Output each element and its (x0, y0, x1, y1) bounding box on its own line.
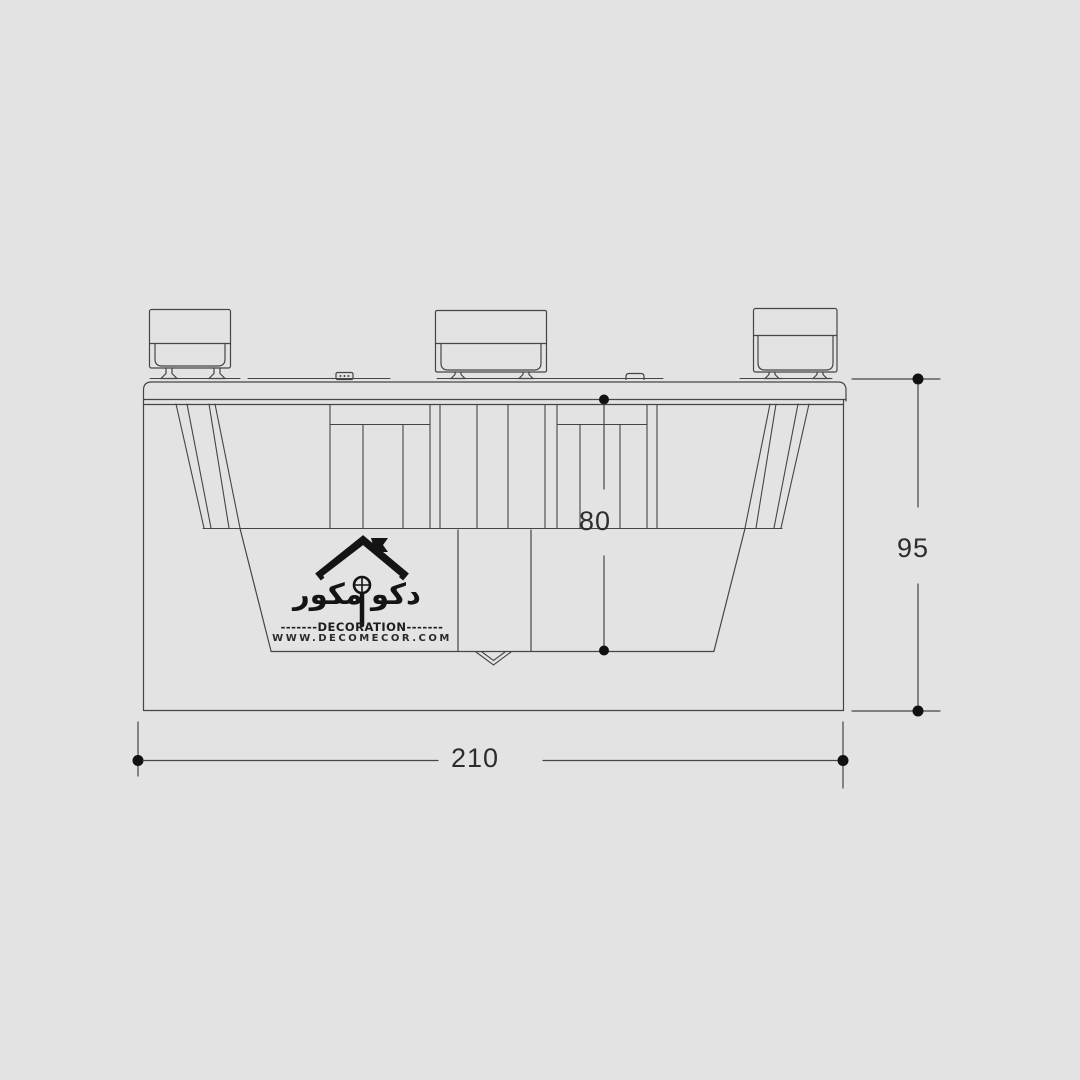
brand-arabic-left: مکور (293, 580, 363, 609)
dimension-label-overall-height: 95 (897, 533, 929, 564)
driver-box-middle (436, 311, 547, 379)
diagram-canvas: 80 95 210 دکو مکور -------DECORATION----… (0, 0, 1080, 1080)
brand-arabic-right: دکو (371, 580, 421, 609)
spring-clip-left (176, 404, 240, 528)
heatsink-fins (203, 405, 782, 529)
spring-clip-right (745, 404, 809, 528)
dimension-label-overall-width: 210 (451, 743, 499, 774)
logo-decoration-label: -------DECORATION------- (281, 620, 444, 634)
brand-watermark: دکو مکور -------DECORATION------- WWW.DE… (285, 532, 440, 652)
driver-box-right (754, 309, 838, 379)
logo-website: WWW.DECOMECOR.COM (272, 633, 452, 644)
lens-barrel (458, 530, 531, 651)
dimension-label-recess-depth: 80 (579, 506, 611, 537)
arrow-tip (476, 652, 511, 665)
driver-box-left (150, 310, 231, 379)
mounting-plate (144, 382, 847, 405)
